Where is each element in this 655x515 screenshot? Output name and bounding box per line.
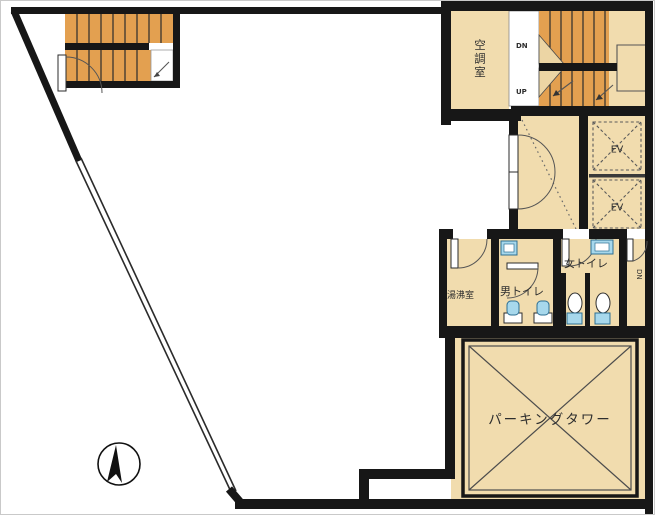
stair-divider-right (539, 63, 617, 71)
parking-tower-label: パーキングタワー (488, 412, 612, 428)
elevator-2-label: EV (611, 203, 624, 214)
hvac-room-label: 空調室 (473, 38, 487, 79)
elevator-hall (517, 114, 581, 233)
mens-toilet-door (507, 263, 538, 269)
boundary-line-inner (81, 158, 236, 491)
urinal-2 (534, 301, 552, 323)
womens-toilet-label: 女トイレ (564, 256, 608, 270)
hall-door-upper (509, 135, 518, 172)
toilet-2 (595, 293, 610, 324)
hall-door-lower (509, 172, 518, 209)
elevator-shaft-area (587, 114, 647, 233)
service-stair-down-label: DN (635, 269, 643, 280)
floor-plan: 空調室 DN UP EV EV 女トイレ 男トイレ 湯沸室 DN パーキングタワ… (0, 0, 655, 515)
urinal-1 (504, 301, 522, 323)
compass-icon (98, 443, 140, 485)
stair-down-label: DN (516, 42, 528, 50)
toilet-1 (567, 293, 582, 324)
elevator-1-label: EV (611, 145, 624, 156)
floor-plan-drawing: 空調室 DN UP EV EV 女トイレ 男トイレ 湯沸室 DN パーキングタワ… (1, 1, 655, 515)
boundary-line-outer (76, 161, 232, 494)
utility-room-label: 湯沸室 (447, 289, 474, 301)
service-strip-door (627, 239, 633, 261)
stair-up-label: UP (516, 88, 527, 96)
utility-room-door (451, 239, 458, 268)
stair-divider-left (65, 43, 149, 50)
mens-toilet-label: 男トイレ (500, 285, 544, 298)
